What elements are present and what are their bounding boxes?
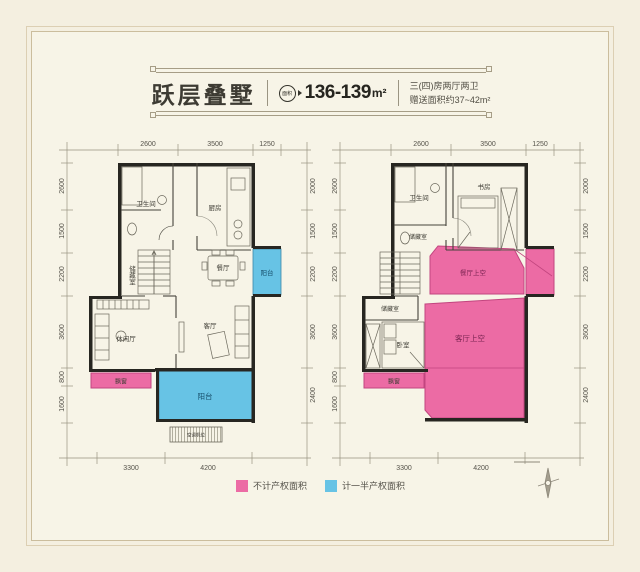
legend-item-half-property: 计一半产权面积	[325, 479, 405, 492]
floor2-stairs	[380, 252, 420, 294]
area-value: 136-139	[305, 82, 371, 104]
svg-text:1600: 1600	[59, 396, 66, 412]
svg-text:2600: 2600	[140, 141, 156, 148]
svg-text:阳台: 阳台	[198, 391, 213, 401]
header-rule-top	[156, 68, 486, 73]
legend-label: 不计产权面积	[253, 479, 307, 492]
svg-text:800: 800	[332, 371, 339, 383]
svg-text:1500: 1500	[310, 223, 317, 239]
area-figure: 面积 136-139 m²	[279, 82, 387, 104]
svg-text:2200: 2200	[59, 266, 66, 282]
svg-text:储藏室: 储藏室	[409, 233, 427, 241]
svg-text:1500: 1500	[59, 223, 66, 239]
svg-text:储藏室: 储藏室	[381, 305, 399, 313]
svg-text:书房: 书房	[478, 182, 491, 191]
svg-text:飘窗: 飘窗	[388, 378, 400, 386]
svg-text:阳台: 阳台	[261, 268, 274, 277]
svg-text:2400: 2400	[583, 387, 590, 403]
legend-item-non-property: 不计产权面积	[236, 479, 307, 492]
unit-bonus-area-text: 赠送面积约37~42m²	[410, 93, 491, 107]
svg-text:2000: 2000	[583, 178, 590, 194]
floor1-stairs	[138, 250, 170, 294]
floor1-ac-pad: 空调机位	[170, 427, 222, 442]
corner-square-icon	[150, 112, 156, 118]
svg-text:3500: 3500	[480, 141, 496, 148]
svg-text:1250: 1250	[532, 141, 548, 148]
header-divider	[267, 80, 268, 106]
svg-text:客厅上空: 客厅上空	[455, 333, 485, 343]
floor1-dimensions: 2600 3500 1250 2600 1500 2200 3600 800 1…	[59, 141, 317, 472]
svg-text:储藏室: 储藏室	[128, 264, 136, 285]
svg-text:2600: 2600	[332, 178, 339, 194]
legend: 不计产权面积 计一半产权面积	[236, 479, 405, 492]
svg-text:3600: 3600	[332, 324, 339, 340]
svg-text:2600: 2600	[59, 178, 66, 194]
svg-text:客厅: 客厅	[204, 321, 218, 330]
page-title: 跃层叠墅	[152, 76, 256, 110]
header: 跃层叠墅 面积 136-139 m² 三(四)房两厅两卫 赠送面积约37~42m…	[150, 64, 492, 118]
svg-text:1500: 1500	[583, 223, 590, 239]
svg-text:卧室: 卧室	[397, 340, 411, 349]
svg-text:2400: 2400	[310, 387, 317, 403]
arrow-right-icon	[298, 90, 302, 96]
pink-swatch-icon	[236, 480, 248, 492]
unit-rooms-text: 三(四)房两厅两卫	[410, 79, 491, 93]
svg-text:3600: 3600	[583, 324, 590, 340]
svg-text:餐厅上空: 餐厅上空	[460, 268, 487, 277]
svg-text:3500: 3500	[207, 141, 223, 148]
svg-text:1500: 1500	[332, 223, 339, 239]
corner-square-icon	[486, 66, 492, 72]
header-rule-bottom	[156, 111, 486, 116]
svg-text:4200: 4200	[473, 465, 489, 472]
floor1-partitions	[121, 163, 251, 368]
corner-square-icon	[150, 66, 156, 72]
area-unit: m²	[372, 86, 387, 100]
floor1-plan: 2600 3500 1250 2600 1500 2200 3600 800 1…	[45, 128, 325, 478]
blue-swatch-icon	[325, 480, 337, 492]
floor2-plan: 2600 3500 1250 2600 1500 2200 3600 800 1…	[318, 128, 598, 478]
svg-text:餐厅: 餐厅	[217, 263, 231, 272]
svg-text:4200: 4200	[200, 465, 216, 472]
svg-text:卫生间: 卫生间	[136, 199, 156, 208]
svg-text:1250: 1250	[259, 141, 275, 148]
svg-text:卫生间: 卫生间	[409, 193, 429, 202]
svg-text:2200: 2200	[583, 266, 590, 282]
svg-text:3600: 3600	[310, 324, 317, 340]
svg-text:空调机位: 空调机位	[187, 432, 205, 439]
area-badge-icon: 面积	[279, 85, 296, 102]
header-divider	[398, 80, 399, 106]
svg-text:2600: 2600	[413, 141, 429, 148]
compass-icon	[512, 452, 568, 502]
svg-text:休闲厅: 休闲厅	[116, 334, 136, 343]
svg-text:厨房: 厨房	[209, 203, 222, 212]
legend-label: 计一半产权面积	[342, 479, 405, 492]
svg-text:3300: 3300	[123, 465, 139, 472]
corner-square-icon	[486, 112, 492, 118]
svg-text:2200: 2200	[310, 266, 317, 282]
svg-text:1600: 1600	[332, 396, 339, 412]
svg-text:800: 800	[59, 371, 66, 383]
unit-description: 三(四)房两厅两卫 赠送面积约37~42m²	[410, 79, 491, 107]
svg-text:2200: 2200	[332, 266, 339, 282]
svg-text:3300: 3300	[396, 465, 412, 472]
svg-text:2000: 2000	[310, 178, 317, 194]
svg-text:3600: 3600	[59, 324, 66, 340]
svg-text:飘窗: 飘窗	[115, 378, 127, 386]
